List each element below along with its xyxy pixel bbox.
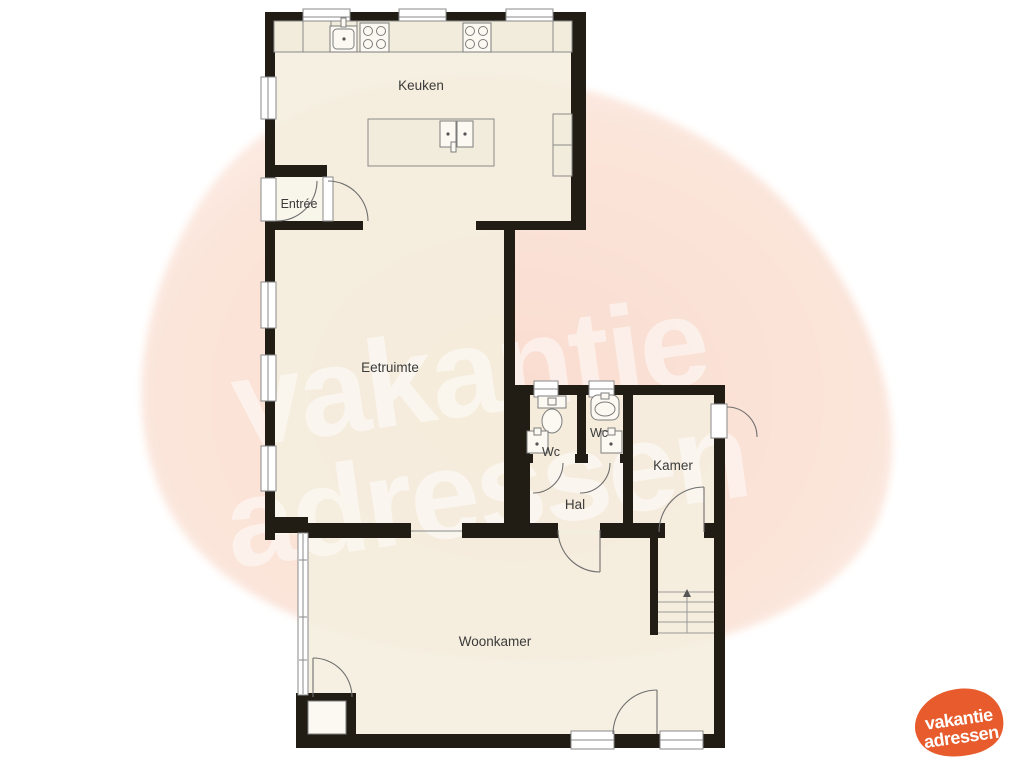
stove-icon bbox=[463, 23, 491, 52]
label-hal: Hal bbox=[565, 497, 585, 512]
label-eetruimte: Eetruimte bbox=[361, 360, 419, 375]
window bbox=[660, 731, 703, 749]
stove-icon bbox=[360, 23, 389, 52]
label-wc-left: Wc bbox=[542, 445, 560, 459]
kitchen-counter bbox=[553, 145, 572, 176]
floorplan-svg: vakantie adressen bbox=[0, 0, 1024, 768]
window-wall bbox=[298, 533, 308, 695]
floorplan-canvas: vakantie adressen bbox=[0, 0, 1024, 768]
label-entree: Entrée bbox=[281, 197, 318, 211]
window bbox=[261, 282, 276, 328]
washbasin-icon bbox=[591, 393, 619, 420]
kitchen-island bbox=[368, 119, 494, 166]
label-wc-right: Wc bbox=[590, 426, 608, 440]
window bbox=[571, 731, 614, 749]
window bbox=[261, 446, 276, 491]
kitchen-counter bbox=[274, 21, 572, 52]
window bbox=[261, 77, 276, 119]
window bbox=[261, 355, 276, 401]
window bbox=[534, 381, 558, 397]
kitchen-counter bbox=[553, 114, 572, 145]
logo: vakantie adressen bbox=[915, 689, 1003, 757]
label-keuken: Keuken bbox=[398, 78, 444, 93]
label-kamer: Kamer bbox=[653, 458, 693, 473]
label-woonkamer: Woonkamer bbox=[459, 634, 532, 649]
